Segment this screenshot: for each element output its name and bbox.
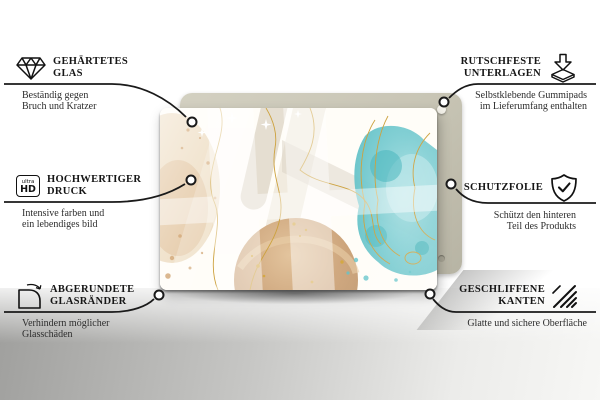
callout-subtitle: Verhindern möglicher Glasschäden	[22, 319, 156, 340]
callout-title: GEHÄRTETES GLAS	[53, 56, 128, 81]
glass-artwork	[160, 108, 437, 290]
ultra-hd-icon: ultra HD	[16, 175, 40, 197]
callout-subtitle: Schützt den hinteren Teil des Produkts	[416, 211, 576, 232]
callout-title: RUTSCHFESTE UNTERLAGEN	[461, 56, 541, 81]
callout-subtitle: Glatte und sichere Oberfläche	[416, 319, 587, 330]
callout-title: GESCHLIFFENE KANTEN	[459, 284, 545, 309]
callout-subtitle: Beständig gegen Bruch und Kratzer	[22, 91, 156, 112]
callout-subtitle: Selbstklebende Gummipads im Lieferumfang…	[416, 91, 587, 112]
rubber-pad	[438, 255, 445, 262]
rounded-corner-icon	[16, 283, 43, 310]
diamond-icon	[16, 56, 46, 81]
callout-title: ABGERUNDETE GLASRÄNDER	[50, 284, 134, 309]
callout-schutzfolie: SCHUTZFOLIE Schützt den hinteren Teil de…	[416, 172, 596, 232]
callout-abgerundete-glasraender: ABGERUNDETE GLASRÄNDER Verhindern möglic…	[16, 280, 156, 340]
callout-title: SCHUTZFOLIE	[464, 182, 543, 195]
shield-check-icon	[550, 173, 578, 203]
callout-title: HOCHWERTIGER DRUCK	[47, 174, 141, 199]
product-infographic: GEHÄRTETES GLAS Beständig gegen Bruch un…	[0, 0, 600, 400]
non-slip-pads-icon	[548, 53, 578, 84]
callout-subtitle: Intensive farben und ein lebendiges bild	[22, 209, 156, 230]
glass-panel	[160, 108, 437, 290]
callout-gehaertetes-glas: GEHÄRTETES GLAS Beständig gegen Bruch un…	[16, 52, 156, 112]
callout-rutschfeste-unterlagen: RUTSCHFESTE UNTERLAGEN Selbstklebende Gu…	[416, 52, 596, 112]
callout-geschliffene-kanten: GESCHLIFFENE KANTEN Glatte und sichere O…	[416, 280, 596, 330]
callout-hochwertiger-druck: ultra HD HOCHWERTIGER DRUCK Intensive fa…	[16, 170, 156, 230]
polished-edges-icon	[552, 284, 578, 309]
